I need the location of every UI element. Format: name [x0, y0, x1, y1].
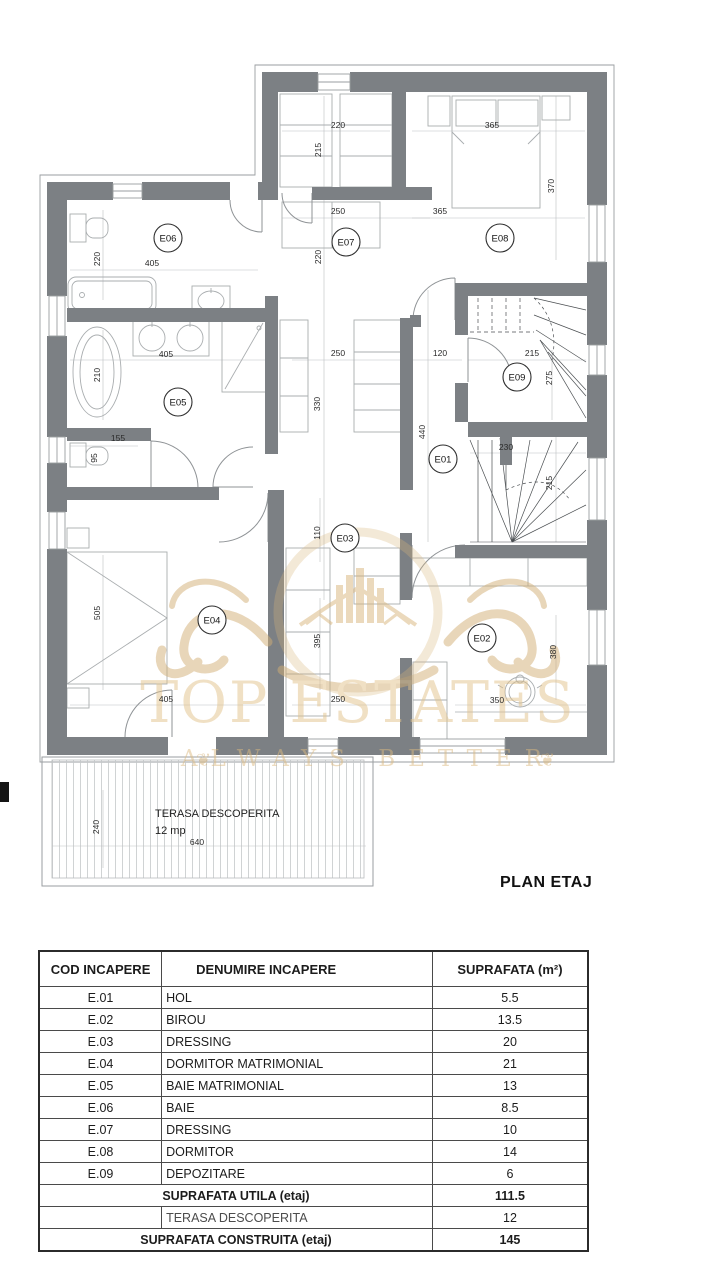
- cell-cod: E.05: [39, 1075, 162, 1097]
- dimension-label: 215: [525, 348, 539, 358]
- cell-cod: E.03: [39, 1031, 162, 1053]
- cell-cod: E.07: [39, 1119, 162, 1141]
- dimension-label: 210: [92, 368, 102, 382]
- cell-denumire: TERASA DESCOPERITA: [162, 1207, 433, 1229]
- svg-text:E08: E08: [492, 234, 509, 245]
- stair-lower: [470, 438, 586, 542]
- dimension-label: 95: [89, 453, 99, 463]
- cell-denumire: BAIE MATRIMONIAL: [162, 1075, 433, 1097]
- cell-suprafata: 10: [432, 1119, 588, 1141]
- dimension-label: 640: [190, 837, 204, 847]
- room-code-e03: E03: [331, 524, 359, 552]
- cell-denumire: DEPOZITARE: [162, 1163, 433, 1185]
- svg-text:E09: E09: [509, 373, 526, 384]
- cell-suprafata: 13.5: [432, 1009, 588, 1031]
- table-row: E.01HOL5.5: [39, 987, 588, 1009]
- cell-denumire: DRESSING: [162, 1119, 433, 1141]
- dimension-label: 405: [159, 694, 173, 704]
- table-row: E.07DRESSING10: [39, 1119, 588, 1141]
- dimension-label: 220: [92, 252, 102, 266]
- cell-total-value: 145: [432, 1229, 588, 1252]
- dimension-label: 120: [433, 348, 447, 358]
- room-code-e01: E01: [429, 445, 457, 473]
- header-suprafata: SUPRAFATA (m²): [432, 951, 588, 987]
- walls: [47, 72, 607, 755]
- windows: [49, 74, 605, 753]
- area-table-body: E.01HOL5.5E.02BIROU13.5E.03DRESSING20E.0…: [39, 987, 588, 1252]
- cell-total-label: SUPRAFATA UTILA (etaj): [39, 1185, 432, 1207]
- cell-suprafata: 12: [432, 1207, 588, 1229]
- dimension-label: 250: [331, 206, 345, 216]
- door-wc: [151, 441, 198, 488]
- door-e08: [413, 278, 455, 320]
- cell-suprafata: 6: [432, 1163, 588, 1185]
- door-e06: [230, 200, 262, 232]
- cell-cod: E.06: [39, 1097, 162, 1119]
- dimension-label: 395: [312, 634, 322, 648]
- dimension-label: 330: [312, 397, 322, 411]
- terrace-area-label: 12 mp: [155, 825, 186, 837]
- cell-denumire: BAIE: [162, 1097, 433, 1119]
- watermark: TOP ESTATES ALWAYS BETTER ❦ ❦: [140, 532, 576, 772]
- room-code-e08: E08: [486, 224, 514, 252]
- room-code-e09: E09: [503, 363, 531, 391]
- wardrobes-e03: [280, 320, 402, 716]
- svg-text:E01: E01: [435, 455, 452, 466]
- dimension-label: 220: [313, 250, 323, 264]
- cell-cod: E.01: [39, 987, 162, 1009]
- header-cod-incapere: COD INCAPERE: [39, 951, 162, 987]
- svg-text:E05: E05: [170, 398, 187, 409]
- floor-plan: TERASA DESCOPERITA 12 mp: [0, 0, 715, 945]
- stairs: [470, 298, 586, 542]
- cell-cod: E.09: [39, 1163, 162, 1185]
- watermark-ornament-left: ❦: [196, 750, 211, 770]
- table-footer-row: SUPRAFATA CONSTRUITA (etaj)145: [39, 1229, 588, 1252]
- dimension-label: 110: [312, 526, 322, 540]
- dimension-label: 370: [546, 179, 556, 193]
- cell-denumire: DRESSING: [162, 1031, 433, 1053]
- dimension-label: 405: [159, 349, 173, 359]
- cell-suprafata: 20: [432, 1031, 588, 1053]
- door-e07: [282, 193, 312, 223]
- window: [589, 345, 605, 375]
- dimension-label: 440: [417, 425, 427, 439]
- cell-suprafata: 5.5: [432, 987, 588, 1009]
- table-row: E.05BAIE MATRIMONIAL13: [39, 1075, 588, 1097]
- cell-cod: E.04: [39, 1053, 162, 1075]
- window: [113, 184, 142, 198]
- dimension-label: 215: [313, 143, 323, 157]
- svg-text:E06: E06: [160, 234, 177, 245]
- area-table: COD INCAPERE DENUMIRE INCAPERE SUPRAFATA…: [38, 950, 589, 1252]
- table-row: E.08DORMITOR14: [39, 1141, 588, 1163]
- area-table-header-row: COD INCAPERE DENUMIRE INCAPERE SUPRAFATA…: [39, 951, 588, 987]
- window: [49, 437, 65, 463]
- room-code-e04: E04: [198, 606, 226, 634]
- dimension-label: 240: [91, 820, 101, 834]
- svg-text:E07: E07: [338, 238, 355, 249]
- dimension-label: 230: [499, 442, 513, 452]
- cell-total-value: 111.5: [432, 1185, 588, 1207]
- header-denumire-incapere: DENUMIRE INCAPERE: [162, 951, 433, 987]
- dimension-label: 380: [548, 645, 558, 659]
- table-row: E.04DORMITOR MATRIMONIAL21: [39, 1053, 588, 1075]
- cell-suprafata: 13: [432, 1075, 588, 1097]
- floor-plan-drawing: TERASA DESCOPERITA 12 mp: [0, 0, 715, 945]
- dimension-label: 275: [544, 371, 554, 385]
- watermark-ornament-right: ❦: [540, 750, 555, 770]
- dimension-label: 350: [490, 695, 504, 705]
- cell-suprafata: 14: [432, 1141, 588, 1163]
- dimension-label: 215: [544, 476, 554, 490]
- cell-suprafata: 8.5: [432, 1097, 588, 1119]
- dimension-label: 155: [111, 433, 125, 443]
- cell-denumire: HOL: [162, 987, 433, 1009]
- cell-suprafata: 21: [432, 1053, 588, 1075]
- table-row: E.06BAIE8.5: [39, 1097, 588, 1119]
- cell-cod: E.02: [39, 1009, 162, 1031]
- dimension-label: 250: [331, 694, 345, 704]
- door-e05: [213, 447, 253, 487]
- svg-text:E03: E03: [337, 534, 354, 545]
- watermark-slogan-text: ALWAYS BETTER: [180, 746, 555, 772]
- stair-upper: [470, 298, 586, 418]
- window: [49, 296, 65, 336]
- terrace-name-label: TERASA DESCOPERITA: [155, 808, 280, 820]
- cell-denumire: DORMITOR MATRIMONIAL: [162, 1053, 433, 1075]
- dimension-label: 505: [92, 606, 102, 620]
- dimension-label: 365: [433, 206, 447, 216]
- dimension-label: 405: [145, 258, 159, 268]
- window: [589, 610, 605, 665]
- cell-cod: E.08: [39, 1141, 162, 1163]
- room-code-e06: E06: [154, 224, 182, 252]
- table-footer-row: SUPRAFATA UTILA (etaj)111.5: [39, 1185, 588, 1207]
- table-row: E.02BIROU13.5: [39, 1009, 588, 1031]
- cell-denumire: DORMITOR: [162, 1141, 433, 1163]
- plan-title: PLAN ETAJ: [500, 874, 592, 892]
- room-code-e07: E07: [332, 228, 360, 256]
- window: [49, 512, 65, 549]
- window: [589, 205, 605, 262]
- window: [318, 74, 350, 90]
- watermark-brand-text: TOP ESTATES: [140, 670, 576, 736]
- drawing-edge-mark: [0, 782, 9, 802]
- room-code-e05: E05: [164, 388, 192, 416]
- svg-text:E04: E04: [204, 616, 221, 627]
- room-code-e02: E02: [468, 624, 496, 652]
- cell-denumire: BIROU: [162, 1009, 433, 1031]
- dimension-label: 365: [485, 120, 499, 130]
- dimension-label: 220: [331, 120, 345, 130]
- svg-text:E02: E02: [474, 634, 491, 645]
- wardrobes-e07: [280, 94, 392, 248]
- dimension-label: 250: [331, 348, 345, 358]
- window: [589, 458, 605, 520]
- cell-total-label: SUPRAFATA CONSTRUITA (etaj): [39, 1229, 432, 1252]
- table-footer-row: TERASA DESCOPERITA12: [39, 1207, 588, 1229]
- table-row: E.03DRESSING20: [39, 1031, 588, 1053]
- door-e04: [219, 493, 268, 542]
- cell-cod-empty: [39, 1207, 162, 1229]
- table-row: E.09DEPOZITARE6: [39, 1163, 588, 1185]
